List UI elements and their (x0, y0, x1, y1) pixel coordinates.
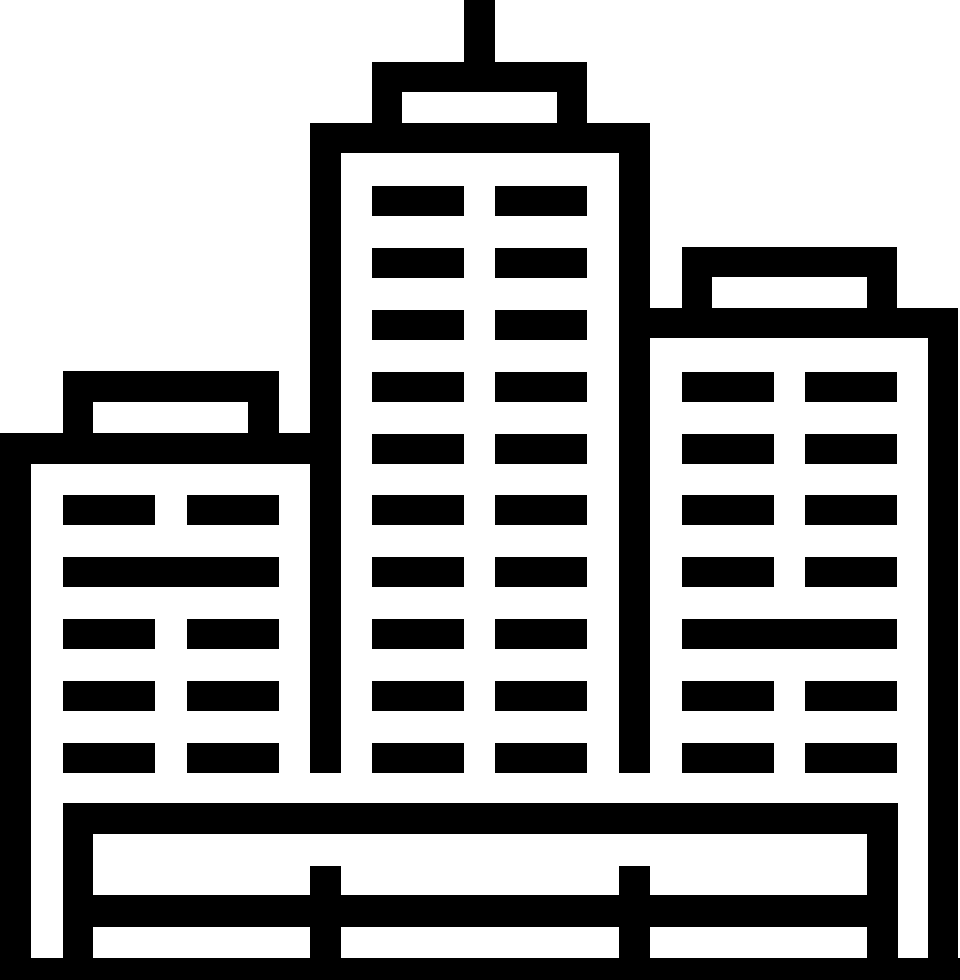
right-window-3b (805, 495, 897, 525)
left-window-1a (63, 495, 155, 525)
right-window-2b (805, 434, 897, 464)
right-roof-band (650, 308, 958, 338)
left-window-4a (63, 681, 155, 711)
center-window-8a (372, 619, 464, 649)
center-window-3b (495, 310, 587, 340)
center-window-6a (372, 495, 464, 525)
center-wall-right (619, 153, 650, 773)
left-window-5b (187, 743, 279, 773)
right-window-6a (682, 681, 774, 711)
center-window-5a (372, 434, 464, 464)
left-window-3a (63, 619, 155, 649)
right-window-5-wide (682, 619, 897, 649)
right-window-6b (805, 681, 897, 711)
base-mid-rail (63, 895, 898, 927)
center-window-3a (372, 310, 464, 340)
right-window-3a (682, 495, 774, 525)
right-window-7b (805, 743, 897, 773)
center-window-1b (495, 186, 587, 216)
center-window-9a (372, 681, 464, 711)
center-roof-band (310, 123, 650, 153)
center-window-10a (372, 743, 464, 773)
left-cap-wall-right (248, 402, 279, 433)
center-window-6b (495, 495, 587, 525)
outer-wall-left (0, 464, 31, 980)
center-window-10b (495, 743, 587, 773)
left-window-5a (63, 743, 155, 773)
city-buildings-icon (0, 0, 960, 980)
center-window-1a (372, 186, 464, 216)
right-window-4b (805, 557, 897, 587)
left-window-3b (187, 619, 279, 649)
center-window-7b (495, 557, 587, 587)
icon-stage (0, 0, 960, 980)
center-window-9b (495, 681, 587, 711)
left-window-1b (187, 495, 279, 525)
center-window-8b (495, 619, 587, 649)
center-window-2b (495, 248, 587, 278)
center-window-2a (372, 248, 464, 278)
outer-wall-right (928, 338, 958, 980)
left-cap-top (63, 371, 279, 402)
right-window-1a (682, 372, 774, 402)
antenna (464, 0, 495, 62)
center-cap-top (372, 62, 587, 92)
right-window-2a (682, 434, 774, 464)
center-cap-wall-left (372, 92, 402, 123)
center-cap-wall-right (557, 92, 587, 123)
center-window-5b (495, 434, 587, 464)
right-cap-top (682, 247, 897, 277)
center-window-4a (372, 372, 464, 402)
left-roof-band (0, 433, 341, 464)
right-cap-wall-left (682, 277, 712, 308)
right-window-7a (682, 743, 774, 773)
right-window-4a (682, 557, 774, 587)
left-window-4b (187, 681, 279, 711)
right-cap-wall-right (867, 277, 897, 308)
center-window-4b (495, 372, 587, 402)
base-top-rail (63, 803, 898, 834)
base-ground-band (0, 958, 960, 980)
center-window-7a (372, 557, 464, 587)
left-cap-wall-left (63, 402, 93, 433)
left-window-2-wide (63, 557, 279, 587)
right-window-1b (805, 372, 897, 402)
